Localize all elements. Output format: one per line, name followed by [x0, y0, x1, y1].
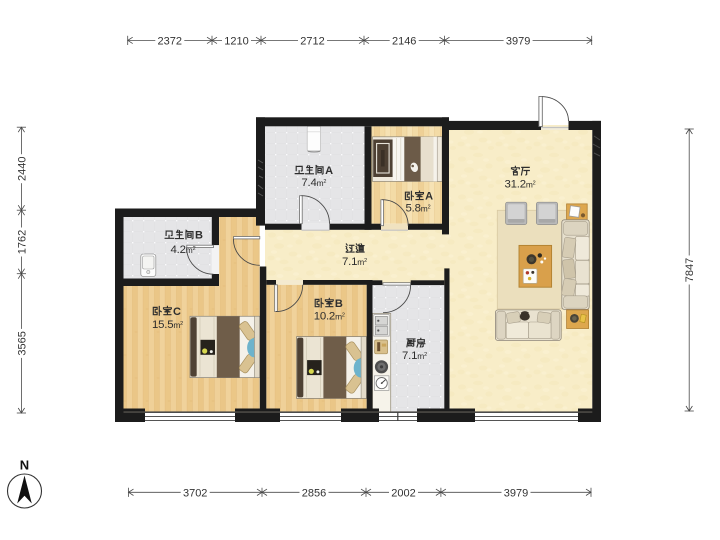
svg-text:N: N: [20, 458, 29, 473]
svg-text:7.1m2: 7.1m2: [342, 256, 367, 268]
svg-text:3565: 3565: [16, 331, 28, 355]
svg-text:2856: 2856: [302, 487, 326, 499]
svg-text:5.8m2: 5.8m2: [406, 203, 431, 215]
svg-text:7.1m2: 7.1m2: [402, 350, 427, 362]
svg-text:2440: 2440: [16, 156, 28, 180]
svg-text:1210: 1210: [224, 35, 248, 47]
svg-text:2002: 2002: [391, 487, 415, 499]
svg-text:15.5m2: 15.5m2: [152, 319, 183, 331]
svg-text:C: C: [173, 306, 181, 318]
svg-text:A: A: [425, 191, 433, 203]
svg-text:31.2m2: 31.2m2: [504, 178, 535, 190]
svg-text:2146: 2146: [392, 35, 416, 47]
svg-text:2712: 2712: [300, 35, 324, 47]
svg-text:10.2m2: 10.2m2: [314, 311, 345, 323]
svg-text:3702: 3702: [183, 487, 207, 499]
svg-text:4.2m2: 4.2m2: [171, 244, 196, 256]
svg-text:7847: 7847: [684, 258, 696, 282]
svg-text:B: B: [335, 298, 343, 310]
svg-text:3979: 3979: [504, 487, 528, 499]
svg-text:B: B: [195, 230, 203, 242]
svg-text:1762: 1762: [16, 230, 28, 254]
svg-text:A: A: [325, 165, 333, 177]
svg-text:2372: 2372: [158, 35, 182, 47]
svg-text:7.4m2: 7.4m2: [301, 177, 326, 189]
svg-text:3979: 3979: [506, 35, 530, 47]
